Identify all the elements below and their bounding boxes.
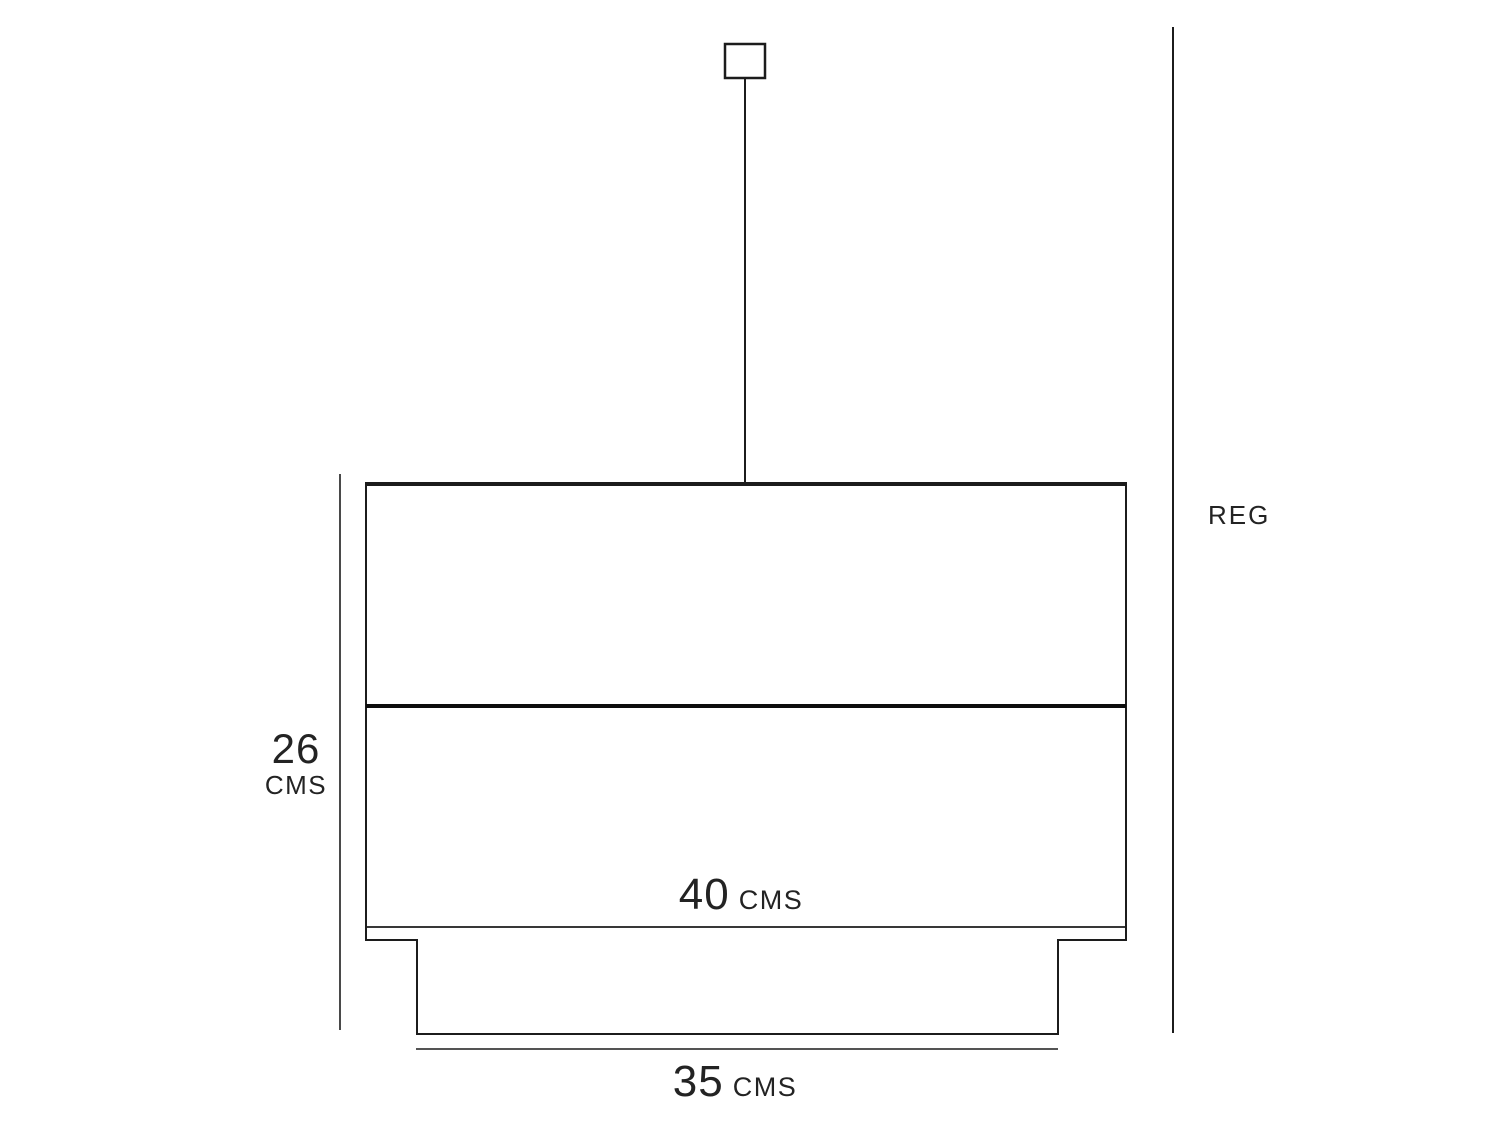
shade-width-dimension-label: 40 CMS [679, 873, 803, 917]
height-unit: CMS [265, 772, 327, 798]
height-dimension-label: 26 CMS [265, 728, 327, 798]
diagram-linework [0, 0, 1500, 1125]
ceiling-canopy [725, 44, 765, 78]
diffuser-width-value: 35 [673, 1060, 724, 1104]
diffuser-width-dimension-label: 35 CMS [673, 1060, 797, 1104]
shade-outline [366, 483, 1126, 1034]
suspension-height-label: REG [1208, 502, 1270, 528]
shade-width-value: 40 [679, 873, 730, 917]
height-value: 26 [272, 728, 321, 770]
shade-width-unit: CMS [739, 887, 804, 914]
dimension-diagram: 26 CMS 40 CMS 35 CMS REG [0, 0, 1500, 1125]
diffuser-width-unit: CMS [733, 1074, 798, 1101]
